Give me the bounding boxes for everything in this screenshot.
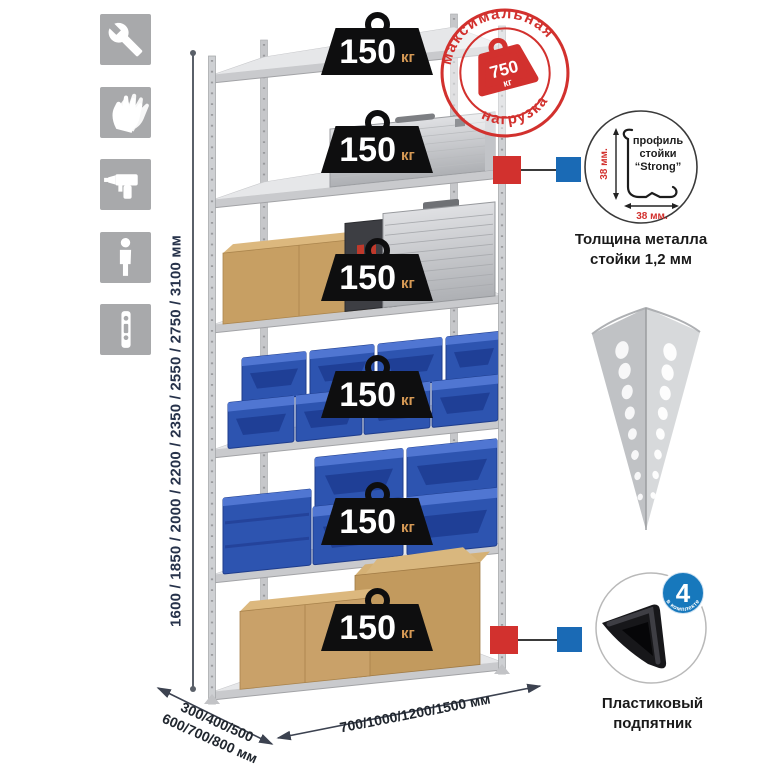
callout-line bbox=[519, 169, 558, 171]
drill-icon bbox=[100, 159, 151, 210]
svg-text:38 мм.: 38 мм. bbox=[599, 148, 610, 180]
svg-text:стойки: стойки bbox=[639, 148, 676, 160]
height-dimension-line bbox=[192, 54, 194, 688]
plastic-foot-detail: 4 в комплекте bbox=[588, 568, 714, 694]
gloves-icon bbox=[100, 87, 151, 138]
svg-text:38 мм.: 38 мм. bbox=[636, 211, 668, 222]
post-callout-target bbox=[556, 157, 581, 182]
wrench-icon bbox=[100, 14, 151, 65]
profile-caption: Толщина металла стойки 1,2 мм bbox=[556, 230, 726, 271]
svg-text:4: 4 bbox=[676, 578, 691, 608]
shelf-load-badge: 150кг bbox=[319, 12, 435, 75]
corner-post-image bbox=[580, 292, 715, 540]
foot-caption: Пластиковый подпятник bbox=[570, 694, 735, 735]
product-infographic: 1600 / 1850 / 2000 / 2200 / 2350 / 2550 … bbox=[0, 0, 765, 765]
shelf-load-badge: 150кг bbox=[319, 482, 435, 545]
shelf-load-badge: 150кг bbox=[319, 238, 435, 301]
height-dimension-label: 1600 / 1850 / 2000 / 2200 / 2350 / 2550 … bbox=[168, 235, 185, 627]
person-icon bbox=[100, 232, 151, 283]
post-profile-icon bbox=[100, 304, 151, 355]
svg-text:“Strong”: “Strong” bbox=[635, 161, 681, 173]
shelf-load-badge: 150кг bbox=[319, 588, 435, 651]
post-profile-detail: 38 мм. 38 мм. профиль стойки “Strong” bbox=[580, 106, 702, 228]
svg-text:профиль: профиль bbox=[633, 135, 683, 147]
foot-callout-target bbox=[557, 627, 582, 652]
shelf-load-badge: 150кг bbox=[319, 355, 435, 418]
callout-line bbox=[516, 639, 559, 641]
post-callout-marker bbox=[493, 156, 521, 184]
foot-callout-marker bbox=[490, 626, 518, 654]
shelf-load-badge: 150кг bbox=[319, 110, 435, 173]
